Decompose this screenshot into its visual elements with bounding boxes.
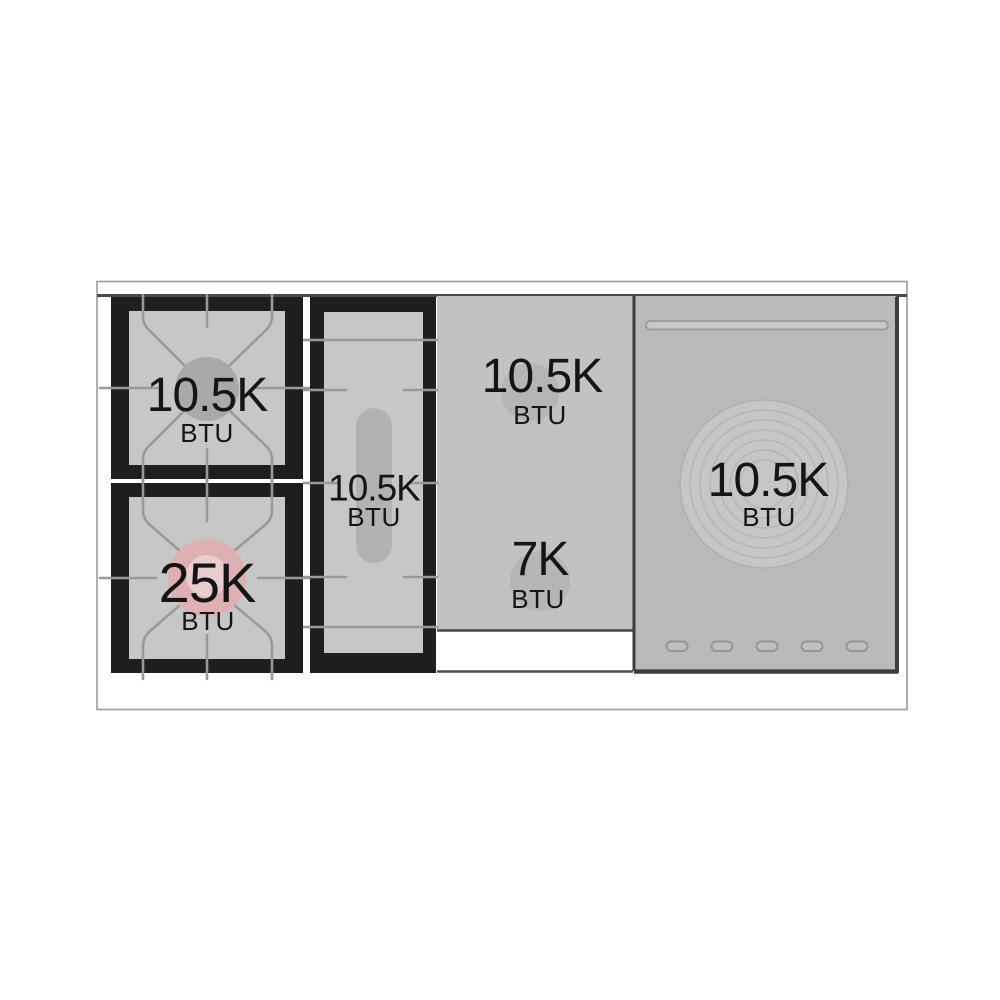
center-oval-burner-power-label: 10.5K xyxy=(328,470,420,507)
vent-slot xyxy=(667,642,688,652)
griddle-front-burner-unit-label: BTU xyxy=(511,586,565,612)
cooktop-diagram: 10.5K BTU 25K BTU 10.5K BTU 10.5K BTU 7K… xyxy=(0,0,1000,1000)
griddle-rear-burner-unit-label: BTU xyxy=(513,402,567,428)
left-rear-burner-power-label: 10.5K xyxy=(147,372,267,420)
griddle-front-gap xyxy=(437,632,633,670)
right-plate-burner-power-label: 10.5K xyxy=(708,457,828,505)
right-plate-burner-unit-label: BTU xyxy=(742,504,796,530)
vent-slot xyxy=(712,642,733,652)
griddle-rear-burner-power-label: 10.5K xyxy=(482,353,602,401)
panel-handle-bar xyxy=(646,321,888,330)
griddle-front-burner-power-label: 7K xyxy=(512,536,569,584)
vent-slot xyxy=(802,642,823,652)
vent-slot xyxy=(847,642,868,652)
cooktop-artwork xyxy=(0,0,1000,1000)
center-oval-burner-unit-label: BTU xyxy=(347,504,401,530)
left-front-burner-power-label: 25K xyxy=(159,555,256,611)
vent-slot xyxy=(757,642,778,652)
left-rear-burner-unit-label: BTU xyxy=(180,420,234,446)
left-front-burner-unit-label: BTU xyxy=(181,608,235,634)
